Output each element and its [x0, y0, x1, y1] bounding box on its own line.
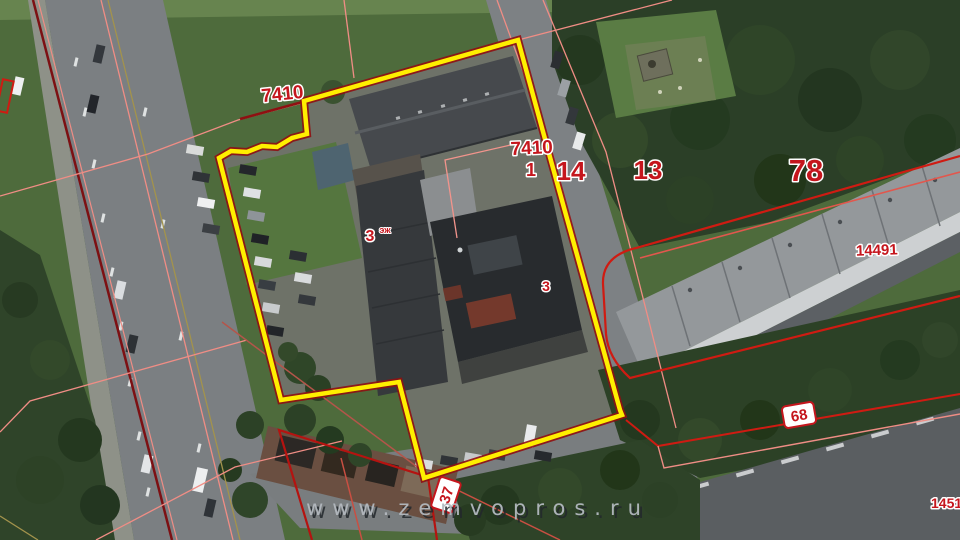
watermark: www.zemvopros.ru www.zemvopros.ru: [306, 496, 653, 523]
parcel-label-7410-nw: 7410: [260, 82, 304, 107]
watermark-text: www.zemvopros.ru: [306, 496, 650, 520]
building-floors-sup-label: эж: [379, 225, 391, 235]
badge-68-label: 68: [789, 406, 808, 426]
parcel-label-78: 78: [789, 153, 823, 188]
parcel-badge-68: 68: [781, 401, 816, 428]
unit-label-1: 1: [526, 160, 536, 180]
parcel-label-14491: 14491: [856, 241, 898, 259]
parcel-label-7410-center: 7410: [510, 137, 553, 160]
building-floors-label: 3: [366, 228, 375, 245]
map-canvas[interactable]: 7410 7410 1 14 13 78 14491 3 эж 3 1451 6…: [0, 0, 960, 540]
parcel-label-13: 13: [634, 155, 663, 185]
map-viewport[interactable]: 7410 7410 1 14 13 78 14491 3 эж 3 1451 6…: [0, 0, 960, 540]
building-label-3: 3: [542, 278, 550, 294]
parcel-label-1451: 1451: [931, 495, 960, 511]
road-label-14: 14: [557, 156, 586, 186]
